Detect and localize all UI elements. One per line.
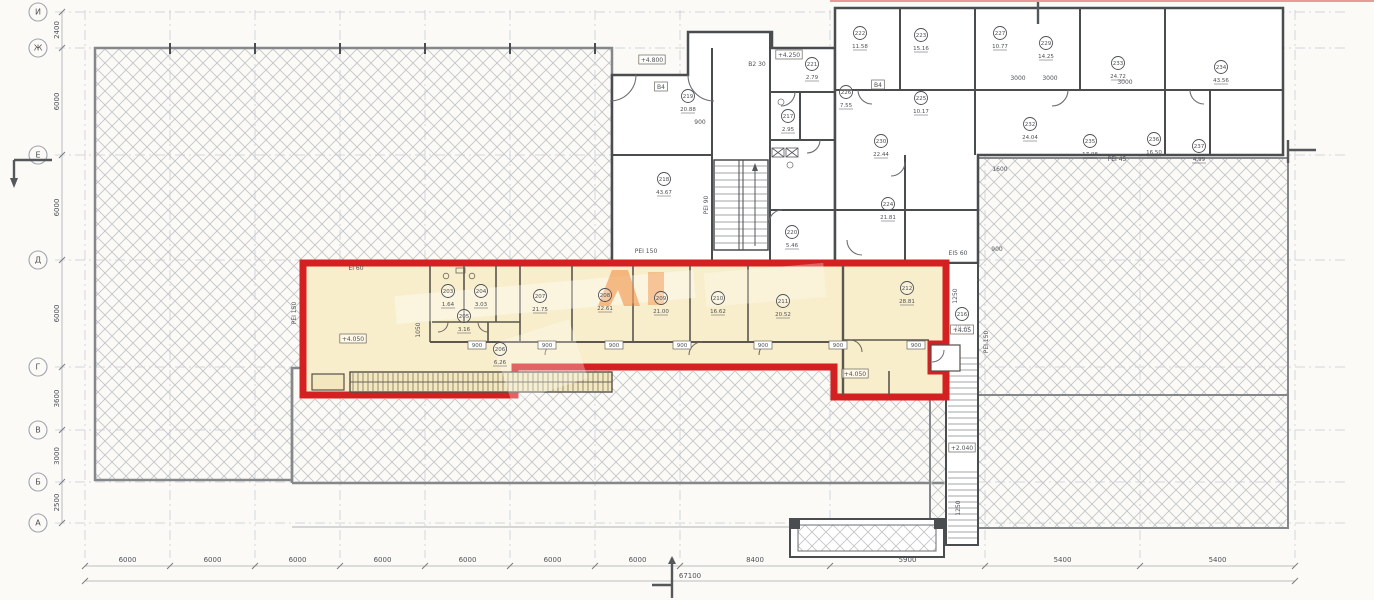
grid-bubble-label: В	[35, 426, 41, 435]
bottom-dim-label: 8400	[746, 556, 764, 564]
plan-label: 3000	[1117, 79, 1132, 86]
room-area: 17.08	[1082, 152, 1098, 158]
left-dim-label: 3600	[53, 390, 61, 408]
room-number: 204	[476, 289, 487, 295]
plan-label: РЕІ 90	[703, 195, 710, 214]
room-number: 237	[1194, 144, 1205, 150]
room-area: 24.04	[1022, 135, 1038, 141]
window-tag: 900	[833, 343, 844, 349]
left-dim-label: 6000	[53, 305, 61, 323]
plan-label: РЕІ 45	[1108, 156, 1127, 163]
plan-label: В4	[874, 82, 882, 89]
plan-label: В4	[657, 84, 665, 91]
left-dim-label: 6000	[53, 93, 61, 111]
room-number: 236	[1149, 137, 1160, 143]
room-number: 218	[659, 177, 670, 183]
stair-core	[714, 160, 768, 250]
plan-label: +4.250	[778, 52, 800, 59]
plan-label: +2.040	[951, 445, 973, 452]
plan-label: 1250	[955, 500, 962, 515]
bottom-dim-label: 5400	[1209, 556, 1227, 564]
bottom-dim-label: 6000	[459, 556, 477, 564]
room-number: 235	[1085, 139, 1096, 145]
upper-middle-building	[610, 32, 835, 263]
room-number: 222	[855, 31, 866, 37]
bottom-dim-label: 6000	[204, 556, 222, 564]
bottom-dim-label: 6000	[544, 556, 562, 564]
room-area: 3.03	[475, 302, 488, 308]
plan-label: +4.800	[641, 57, 663, 64]
left-dim-label: 3000	[53, 447, 61, 465]
room-area: 6.26	[494, 360, 507, 366]
plan-label: 1050	[415, 322, 422, 337]
room-area: 10.77	[992, 44, 1008, 50]
window-tag: 900	[609, 343, 620, 349]
room-area: 43.67	[656, 190, 672, 196]
room-number: 223	[916, 33, 927, 39]
room-number: 226	[841, 90, 852, 96]
plan-label: +4.050	[342, 336, 364, 343]
plan-label: +4.050	[844, 371, 866, 378]
room-area: 20.52	[775, 312, 791, 318]
plan-label: 900	[694, 119, 706, 126]
room-area: 10.17	[913, 109, 929, 115]
bottom-dim-label: 6000	[119, 556, 137, 564]
window-tag: 900	[472, 343, 483, 349]
room-number: 233	[1113, 61, 1124, 67]
room-number: 229	[1041, 41, 1052, 47]
plan-label: 1600	[992, 166, 1007, 173]
plan-label: 3000	[1010, 75, 1025, 82]
room-number: 211	[778, 299, 789, 305]
plan-label: В2 30	[748, 61, 766, 68]
room-area: 15.16	[913, 46, 929, 52]
bottom-total-label: 67100	[679, 572, 701, 580]
room-number: 234	[1216, 65, 1227, 71]
grid-bubble-label: А	[35, 519, 41, 528]
room-area: 2.95	[782, 127, 795, 133]
section-arrow	[10, 178, 18, 188]
entrance-canopy	[790, 519, 944, 557]
grid-bubble-label: И	[35, 8, 41, 17]
grid-bubble-label: Д	[35, 256, 41, 265]
room-number: 224	[883, 202, 894, 208]
room-number: 208	[600, 293, 611, 299]
window-tag: 900	[911, 343, 922, 349]
left-dim-label: 2500	[53, 494, 61, 512]
room-area: 21.81	[880, 215, 896, 221]
plan-label: +4.05	[953, 327, 972, 334]
plan-label: 3000	[1042, 75, 1057, 82]
room-area: 14.25	[1038, 54, 1054, 60]
plan-label: ЕІ5 60	[949, 250, 968, 257]
window-tag: 900	[758, 343, 769, 349]
plan-label: РЕІ 150	[983, 331, 990, 354]
room-area: 21.75	[532, 307, 548, 313]
room-number: 203	[443, 289, 454, 295]
room-area: 4.99	[1193, 157, 1206, 163]
room-number: 219	[683, 94, 694, 100]
right-hatch-upper	[978, 158, 1288, 395]
room-number: 227	[995, 31, 1006, 37]
room-area: 11.58	[852, 44, 868, 50]
plan-label: РЕІ 150	[291, 302, 298, 325]
room-number: 217	[783, 114, 794, 120]
window-tag: 900	[677, 343, 688, 349]
room-number: 205	[459, 314, 470, 320]
room-number: 221	[807, 62, 818, 68]
bottom-dim-label: 6000	[289, 556, 307, 564]
room-area: 22.61	[597, 306, 613, 312]
room-area: 43.56	[1213, 78, 1229, 84]
stair-landing	[931, 345, 960, 371]
plan-label: ЕІ 60	[348, 265, 363, 272]
stair-corridor	[946, 263, 978, 545]
plan-label: 900	[991, 246, 1003, 253]
grid-bubble-label: Ж	[34, 44, 43, 53]
plan-label: 1250	[952, 288, 959, 303]
section-arrow-bottom	[668, 556, 676, 564]
room-area: 28.81	[899, 299, 915, 305]
right-hatch-lower	[930, 395, 1288, 528]
bottom-dim-label: 6000	[629, 556, 647, 564]
room-area: 7.55	[840, 103, 853, 109]
bottom-dim-label: 5400	[1054, 556, 1072, 564]
room-number: 225	[916, 96, 927, 102]
window-tag: 900	[542, 343, 553, 349]
room-number: 230	[876, 139, 887, 145]
room-area: 16.62	[710, 309, 726, 315]
grid-bubble-label: Е	[35, 151, 40, 160]
room-number: 206	[495, 347, 506, 353]
grid-bubble-label: Б	[35, 478, 41, 487]
room-number: 216	[957, 312, 968, 318]
room-area: 1.64	[442, 302, 455, 308]
room-area: 3.16	[458, 327, 471, 333]
left-dim-label: 6000	[53, 199, 61, 217]
room-area: 21.00	[653, 309, 669, 315]
room-area: 20.88	[680, 107, 696, 113]
room-area: 2.79	[806, 75, 819, 81]
room-number: 212	[902, 286, 913, 292]
room-number: 207	[535, 294, 546, 300]
room-number: 232	[1025, 122, 1036, 128]
bottom-dim-label: 6000	[374, 556, 392, 564]
floor-plan-drawing: ИЖЕДГВБА24006000600060003600300025006000…	[0, 0, 1374, 600]
room-area: 22.44	[873, 152, 889, 158]
plan-label: РЕІ 150	[635, 248, 658, 255]
grid-bubble-label: Г	[36, 363, 41, 372]
room-area: 5.46	[786, 243, 799, 249]
floor-plan-page: ИЖЕДГВБА24006000600060003600300025006000…	[0, 0, 1374, 600]
room-area: 16.50	[1146, 150, 1162, 156]
room-number: 220	[787, 230, 798, 236]
left-dim-label: 2400	[53, 21, 61, 39]
room-number: 210	[713, 296, 724, 302]
room-number: 209	[656, 296, 667, 302]
